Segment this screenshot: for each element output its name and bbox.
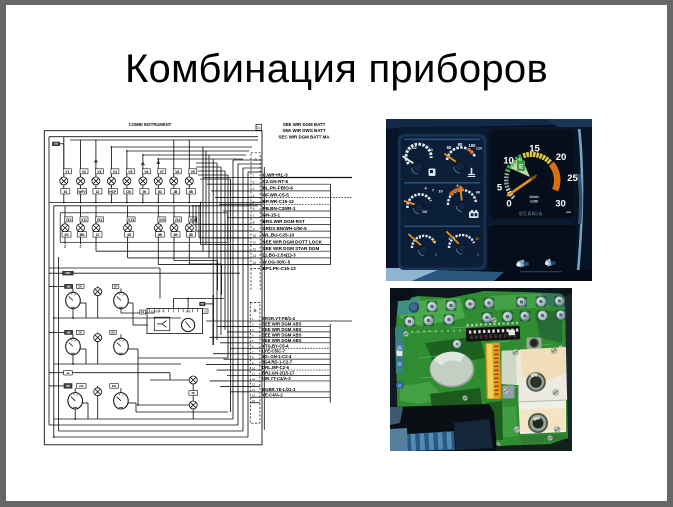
svg-text:1: 1 (431, 148, 433, 152)
svg-text:12: 12 (253, 247, 257, 251)
svg-text:BB: BB (67, 331, 71, 334)
svg-text:3G4.RD-1-C2-7: 3G4.RD-1-C2-7 (262, 360, 293, 365)
svg-text:6: 6 (465, 234, 467, 238)
svg-text:SEE WIR DGM DOTT LOCK: SEE WIR DGM DOTT LOCK (263, 239, 323, 244)
svg-text:0: 0 (506, 199, 511, 210)
svg-text:BP.WR-C15-12: BP.WR-C15-12 (263, 199, 295, 204)
svg-text:7: 7 (432, 189, 434, 193)
svg-text:30: 30 (555, 199, 566, 210)
svg-text:SRC: SRC (65, 272, 70, 275)
svg-text:25: 25 (567, 173, 578, 184)
svg-text:00: 00 (143, 190, 147, 194)
svg-text:V7: V7 (160, 170, 164, 174)
svg-text:11: 11 (253, 241, 257, 245)
svg-text:BB: BB (67, 285, 71, 288)
svg-text:WL.BU-C25-10: WL.BU-C25-10 (263, 233, 295, 238)
svg-text:10: 10 (475, 237, 479, 241)
svg-text:GB: GB (54, 143, 58, 146)
svg-text:SEE WIR DGM ABS: SEE WIR DGM ABS (262, 321, 302, 326)
svg-text:1/2: 1/2 (411, 145, 417, 150)
svg-text:WFV: WFV (78, 190, 86, 194)
svg-text:4B: 4B (189, 233, 194, 237)
svg-text:BP1.PK-C15-13: BP1.PK-C15-13 (263, 266, 297, 271)
svg-text:SCANIA: SCANIA (519, 212, 543, 218)
svg-text:SEC WIR DGM BATT MA: SEC WIR DGM BATT MA (279, 134, 331, 139)
svg-text:10: 10 (432, 239, 436, 243)
svg-text:44: 44 (63, 190, 67, 194)
svg-text:V12: V12 (97, 218, 103, 222)
svg-text:I.YE-C5/C-7: I.YE-C5/C-7 (262, 349, 286, 354)
svg-text:C.WR+RL-3: C.WR+RL-3 (263, 172, 289, 177)
svg-text:Z: Z (79, 245, 81, 249)
svg-text:W.OG-30/C-5: W.OG-30/C-5 (263, 259, 291, 264)
svg-text:x100: x100 (530, 200, 538, 204)
svg-text:○: ○ (477, 252, 480, 257)
svg-text:D1: D1 (257, 126, 261, 130)
svg-text:120: 120 (476, 147, 482, 151)
svg-text:XTG.BY-C5-4: XTG.BY-C5-4 (262, 343, 289, 348)
svg-text:20: 20 (556, 152, 567, 163)
svg-text:BL.PK-FB/O-6: BL.PK-FB/O-6 (263, 186, 294, 191)
svg-text:V11: V11 (81, 218, 87, 222)
svg-text:V5: V5 (128, 170, 132, 174)
svg-text:4G: 4G (64, 233, 69, 237)
svg-text:DRL.MF-C2-6: DRL.MF-C2-6 (262, 365, 290, 370)
svg-text:F3-F9S+- V: F3-F9S+- V (151, 310, 164, 313)
svg-text:ISR.YT-C4/A-3: ISR.YT-C4/A-3 (262, 376, 291, 381)
svg-text:13: 13 (96, 190, 100, 194)
svg-text:4B: 4B (189, 190, 194, 194)
svg-text:CB: CB (126, 190, 131, 194)
svg-text:13: 13 (253, 254, 257, 258)
svg-text:SEE WIR DGM ABS: SEE WIR DGM ABS (262, 338, 302, 343)
svg-text:13: 13 (252, 383, 256, 387)
svg-text:E: E (519, 164, 524, 171)
svg-text:60: 60 (476, 191, 480, 195)
svg-text:5: 5 (497, 183, 503, 194)
svg-text:11.BG-2.5x(1)-3: 11.BG-2.5x(1)-3 (263, 253, 297, 258)
svg-text:OF.WR-C5-5: OF.WR-C5-5 (263, 192, 290, 197)
svg-text:BD: BD (66, 385, 70, 388)
svg-text:0: 0 (449, 237, 451, 241)
svg-text:COMBI INSTRUMENT: COMBI INSTRUMENT (129, 122, 172, 127)
svg-text:C8: C8 (204, 310, 208, 313)
svg-text:5: 5 (253, 201, 255, 205)
svg-text:V13: V13 (128, 218, 134, 222)
svg-text:10: 10 (253, 234, 257, 238)
svg-text:SEE WIR DGM ABS: SEE WIR DGM ABS (262, 332, 302, 337)
svg-text:6: 6 (253, 207, 255, 211)
svg-text:15: 15 (252, 394, 256, 398)
svg-text:PB.BN-C35/R-1: PB.BN-C35/R-1 (263, 206, 296, 211)
svg-text:- - W/B: - - W/B (183, 310, 191, 313)
svg-text:SEE WIR DGM STAR DGM: SEE WIR DGM STAR DGM (263, 246, 320, 251)
svg-text:11: 11 (252, 372, 255, 376)
svg-text:4D: 4D (127, 233, 132, 237)
svg-text:4: 4 (253, 194, 255, 198)
svg-text:GB: GB (201, 304, 205, 306)
svg-text:4B: 4B (158, 233, 163, 237)
svg-text:9: 9 (253, 227, 255, 231)
svg-text:SEE WIR DGM BATT: SEE WIR DGM BATT (283, 122, 326, 127)
svg-text:V1: V1 (65, 170, 69, 174)
svg-text:7: 7 (253, 214, 255, 218)
svg-text:V4: V4 (113, 170, 117, 174)
svg-text:V8: V8 (175, 170, 179, 174)
svg-text:10: 10 (252, 366, 256, 370)
svg-text:BN: BN (80, 233, 85, 237)
svg-text:15: 15 (529, 144, 540, 155)
svg-text:3: 3 (253, 187, 255, 191)
svg-text:80: 80 (458, 142, 463, 147)
svg-text:CM: CM (422, 210, 427, 214)
svg-text:ad: ad (66, 372, 69, 375)
svg-text:SRSR.VT-FB/1-4: SRSR.VT-FB/1-4 (262, 316, 296, 321)
svg-text:○: ○ (435, 252, 438, 257)
svg-text:10: 10 (438, 190, 442, 194)
svg-text:0: 0 (419, 236, 421, 240)
svg-text:B: B (253, 308, 256, 313)
svg-text:0: 0 (456, 184, 458, 188)
svg-text:Z: Z (64, 245, 66, 249)
svg-text:HCP: HCP (109, 190, 117, 194)
svg-text:1/min: 1/min (529, 195, 539, 199)
svg-text:10: 10 (503, 156, 514, 167)
svg-text:3G-.GN-1-C2-4: 3G-.GN-1-C2-4 (262, 354, 292, 359)
svg-text:GN-15-1: GN-15-1 (263, 213, 281, 218)
svg-text:16: 16 (252, 399, 256, 403)
svg-text:150: 150 (79, 385, 84, 388)
svg-text:BR2.GN-2/15-17: BR2.GN-2/15-17 (262, 371, 295, 376)
svg-text:SEE WIR DGM ABS: SEE WIR DGM ABS (262, 327, 302, 332)
svg-text:SEE WIR DWG BATT: SEE WIR DWG BATT (282, 128, 325, 133)
svg-text:2: 2 (253, 180, 255, 184)
svg-text:4D: 4D (158, 190, 163, 194)
svg-text:1B: 1B (173, 190, 178, 194)
svg-text:14: 14 (252, 388, 256, 392)
svg-text:60: 60 (447, 145, 452, 150)
svg-text:V9: V9 (191, 170, 195, 174)
svg-text:V6: V6 (144, 170, 148, 174)
svg-text:A: A (254, 157, 258, 162)
svg-text:SRDS BN/WH-1/50-5: SRDS BN/WH-1/50-5 (263, 226, 308, 231)
svg-text:12: 12 (252, 377, 256, 381)
svg-text:4B: 4B (173, 233, 178, 237)
svg-text:V2: V2 (82, 170, 86, 174)
svg-text:BGBR.YE-L/21-1: BGBR.YE-L/21-1 (262, 387, 296, 392)
svg-text:V20: V20 (159, 218, 165, 222)
svg-text:D11: D11 (112, 385, 117, 388)
svg-text:1Z: 1Z (96, 233, 100, 237)
svg-text:14: 14 (253, 261, 257, 265)
svg-text:V14: V14 (175, 218, 181, 222)
svg-text:YE-C4/A-2: YE-C4/A-2 (262, 392, 283, 397)
svg-text:8: 8 (253, 221, 255, 225)
svg-text:1: 1 (253, 174, 255, 178)
svg-text:BRS.WIR DGM RST: BRS.WIR DGM RST (263, 219, 306, 224)
svg-text:C2.GN-RT-6: C2.GN-RT-6 (263, 179, 289, 184)
svg-text:V10: V10 (66, 218, 72, 222)
svg-text:V3: V3 (97, 170, 101, 174)
